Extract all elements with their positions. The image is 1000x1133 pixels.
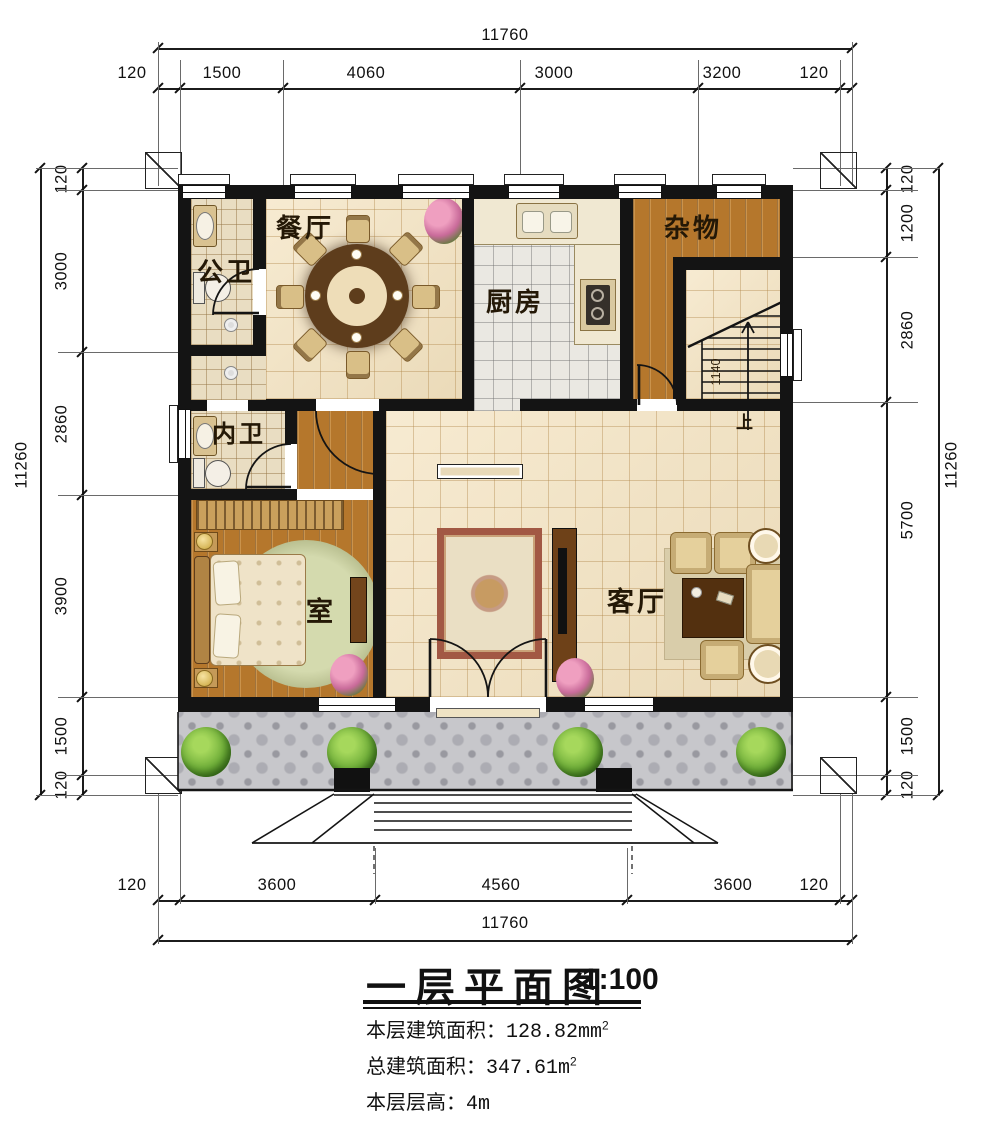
extension-line xyxy=(58,190,178,191)
dim-line xyxy=(82,168,84,795)
extension-line xyxy=(375,848,376,904)
extension-line xyxy=(840,793,841,904)
extension-line xyxy=(852,793,853,944)
wall xyxy=(379,399,474,411)
dim-label: 3600 xyxy=(714,876,753,895)
dim-label: 120 xyxy=(117,64,146,83)
wall xyxy=(178,697,318,712)
axis-corner-marker xyxy=(145,757,182,794)
stove xyxy=(580,279,616,331)
dim-label: 4560 xyxy=(482,876,521,895)
extension-line xyxy=(698,60,699,186)
stair-width-label: 1140 xyxy=(709,359,723,386)
dim-label: 3000 xyxy=(53,252,72,291)
table-lamp xyxy=(196,533,213,550)
dim-label: 120 xyxy=(799,876,828,895)
wall xyxy=(266,399,316,411)
info-sup: 2 xyxy=(570,1054,577,1068)
sink-bowl xyxy=(522,211,544,233)
drawing-title: 一层平面图 xyxy=(366,955,611,1013)
window xyxy=(716,185,762,199)
dining-chair xyxy=(412,285,440,309)
window-sill xyxy=(504,174,564,185)
bedroom-cabinet xyxy=(350,577,367,643)
extension-line xyxy=(180,793,181,904)
window xyxy=(780,333,793,377)
potted-plant xyxy=(330,654,368,696)
extension-line xyxy=(793,168,940,169)
kitchen-passage-floor xyxy=(474,399,520,411)
armchair xyxy=(670,532,712,574)
living-room-rug xyxy=(437,528,542,659)
room-label-public-bath: 公卫 xyxy=(197,252,255,289)
tv-screen xyxy=(558,548,567,634)
window xyxy=(508,185,560,199)
bed-headboard xyxy=(194,556,210,664)
step-wing-line xyxy=(632,794,694,843)
wall xyxy=(178,185,793,199)
wall xyxy=(620,185,633,399)
toilet-bowl xyxy=(205,460,231,487)
window xyxy=(318,697,396,712)
porch-column xyxy=(334,768,370,792)
axis-corner-marker xyxy=(820,152,857,189)
extension-line xyxy=(58,697,178,698)
window-sill xyxy=(793,329,802,381)
extension-line xyxy=(58,352,178,353)
window-sill xyxy=(614,174,666,185)
title-rule-thick xyxy=(363,1000,641,1004)
wall xyxy=(654,697,780,712)
table-lamp xyxy=(196,670,213,687)
info-label: 本层建筑面积： xyxy=(366,1020,506,1042)
dining-chair xyxy=(346,351,370,379)
dim-label: 1200 xyxy=(899,204,918,243)
dim-label: 11760 xyxy=(481,914,528,933)
plate xyxy=(310,290,321,301)
window xyxy=(584,697,654,712)
dim-label: 120 xyxy=(117,876,146,895)
burner-icon xyxy=(591,307,604,320)
hall-console-table xyxy=(437,464,523,479)
dim-label: 1500 xyxy=(203,64,242,83)
dim-label: 1500 xyxy=(53,717,72,756)
extension-line xyxy=(36,795,178,796)
info-floor-height: 本层层高：4m xyxy=(366,1086,490,1116)
info-label: 本层层高： xyxy=(366,1092,466,1114)
dim-line xyxy=(938,168,940,795)
dim-label: 2860 xyxy=(53,405,72,444)
dim-label: 11260 xyxy=(13,441,32,488)
dim-label: 3000 xyxy=(535,64,574,83)
dim-label: 4060 xyxy=(347,64,386,83)
pillow xyxy=(212,613,241,659)
info-floor-area: 本层建筑面积：128.82mm2 xyxy=(366,1014,609,1044)
dining-chair xyxy=(346,215,370,243)
potted-plant xyxy=(556,658,594,700)
plate xyxy=(392,290,403,301)
sink-basin xyxy=(196,212,214,240)
drawing-scale: 1:100 xyxy=(582,963,659,997)
window xyxy=(402,185,470,199)
info-value: 4m xyxy=(466,1093,490,1116)
bedroom-entry-floor xyxy=(297,411,373,489)
teacup xyxy=(691,587,702,598)
wall xyxy=(780,199,793,712)
info-value: 128.82mm xyxy=(506,1021,602,1044)
step-wing-line xyxy=(636,794,718,843)
extension-line xyxy=(793,402,918,403)
porch-column xyxy=(596,768,632,792)
extension-line xyxy=(283,60,284,186)
sink-bowl xyxy=(550,211,572,233)
wall xyxy=(396,697,430,712)
wall xyxy=(520,399,637,411)
extension-line xyxy=(793,697,918,698)
window-sill xyxy=(178,174,230,185)
room-label-storage: 杂物 xyxy=(664,208,722,245)
dim-line xyxy=(158,900,852,902)
step-wing-line xyxy=(252,794,334,843)
dining-chair xyxy=(276,285,304,309)
toilet-tank xyxy=(193,458,205,488)
dim-label: 2860 xyxy=(899,311,918,350)
window-sill xyxy=(712,174,766,185)
extension-line xyxy=(793,190,918,191)
extension-line xyxy=(627,848,628,904)
armchair xyxy=(700,640,744,680)
window-sill xyxy=(290,174,356,185)
floor-drain xyxy=(224,366,238,380)
dining-table-center xyxy=(349,288,365,304)
dim-label: 1500 xyxy=(899,717,918,756)
wall xyxy=(178,489,297,500)
room-label-inner-bath: 内卫 xyxy=(212,414,266,449)
window-sill xyxy=(169,405,178,463)
entrance-threshold xyxy=(436,708,540,718)
wall xyxy=(462,185,474,399)
window xyxy=(182,185,226,199)
room-label-living: 客厅 xyxy=(607,580,667,619)
kitchen-sink xyxy=(516,203,578,239)
extension-line xyxy=(158,793,159,944)
dim-label: 11760 xyxy=(481,26,528,45)
dim-line xyxy=(158,48,852,50)
book xyxy=(716,591,734,605)
stairwell-floor xyxy=(686,270,780,399)
burner-icon xyxy=(591,289,604,302)
wardrobe xyxy=(196,500,344,530)
wall xyxy=(285,411,297,444)
title-rule-thin xyxy=(363,1007,641,1009)
wall xyxy=(546,697,584,712)
window xyxy=(294,185,352,199)
floor-plan-page: 11760 120 1500 4060 3000 3200 120 120 36… xyxy=(0,0,1000,1133)
dim-label: 11260 xyxy=(943,441,962,488)
potted-plant xyxy=(424,198,464,244)
dim-label: 3600 xyxy=(258,876,297,895)
wall xyxy=(673,257,686,399)
stair-up-label: 上 xyxy=(736,408,753,433)
dim-line xyxy=(886,168,888,795)
side-table xyxy=(748,528,784,564)
extension-line xyxy=(520,60,521,186)
extension-line xyxy=(58,495,178,496)
dim-label: 3900 xyxy=(53,577,72,616)
axis-corner-marker xyxy=(145,152,182,189)
stair-corridor-floor xyxy=(633,257,673,399)
window-sill xyxy=(398,174,474,185)
dim-line xyxy=(40,168,42,795)
window xyxy=(178,409,191,459)
plate xyxy=(351,332,362,343)
room-label-bedroom: 室 xyxy=(306,590,336,629)
plate xyxy=(351,249,362,260)
room-label-dining: 餐厅 xyxy=(276,208,334,245)
info-sup: 2 xyxy=(602,1018,609,1032)
wall xyxy=(673,257,780,270)
room-label-kitchen: 厨房 xyxy=(486,282,544,319)
coffee-table xyxy=(682,578,744,638)
pillow xyxy=(212,560,241,606)
shrub-tree xyxy=(736,727,786,777)
floor-drain xyxy=(224,318,238,332)
dim-label: 3200 xyxy=(703,64,742,83)
step-wing-line xyxy=(312,794,374,843)
wall xyxy=(191,400,207,411)
info-label: 总建筑面积： xyxy=(366,1056,486,1078)
dim-label: 120 xyxy=(799,64,828,83)
dim-line xyxy=(158,88,852,90)
info-total-area: 总建筑面积：347.61m2 xyxy=(366,1050,577,1080)
extension-line xyxy=(793,257,918,258)
wall xyxy=(677,399,780,411)
wall xyxy=(373,411,386,697)
info-value: 347.61m xyxy=(486,1057,570,1080)
dim-line xyxy=(158,940,852,942)
axis-corner-marker xyxy=(820,757,857,794)
porch-floor xyxy=(178,712,793,790)
wall xyxy=(178,345,266,356)
dim-label: 5700 xyxy=(899,501,918,540)
shrub-tree xyxy=(181,727,231,777)
window xyxy=(618,185,662,199)
extension-line xyxy=(793,795,940,796)
